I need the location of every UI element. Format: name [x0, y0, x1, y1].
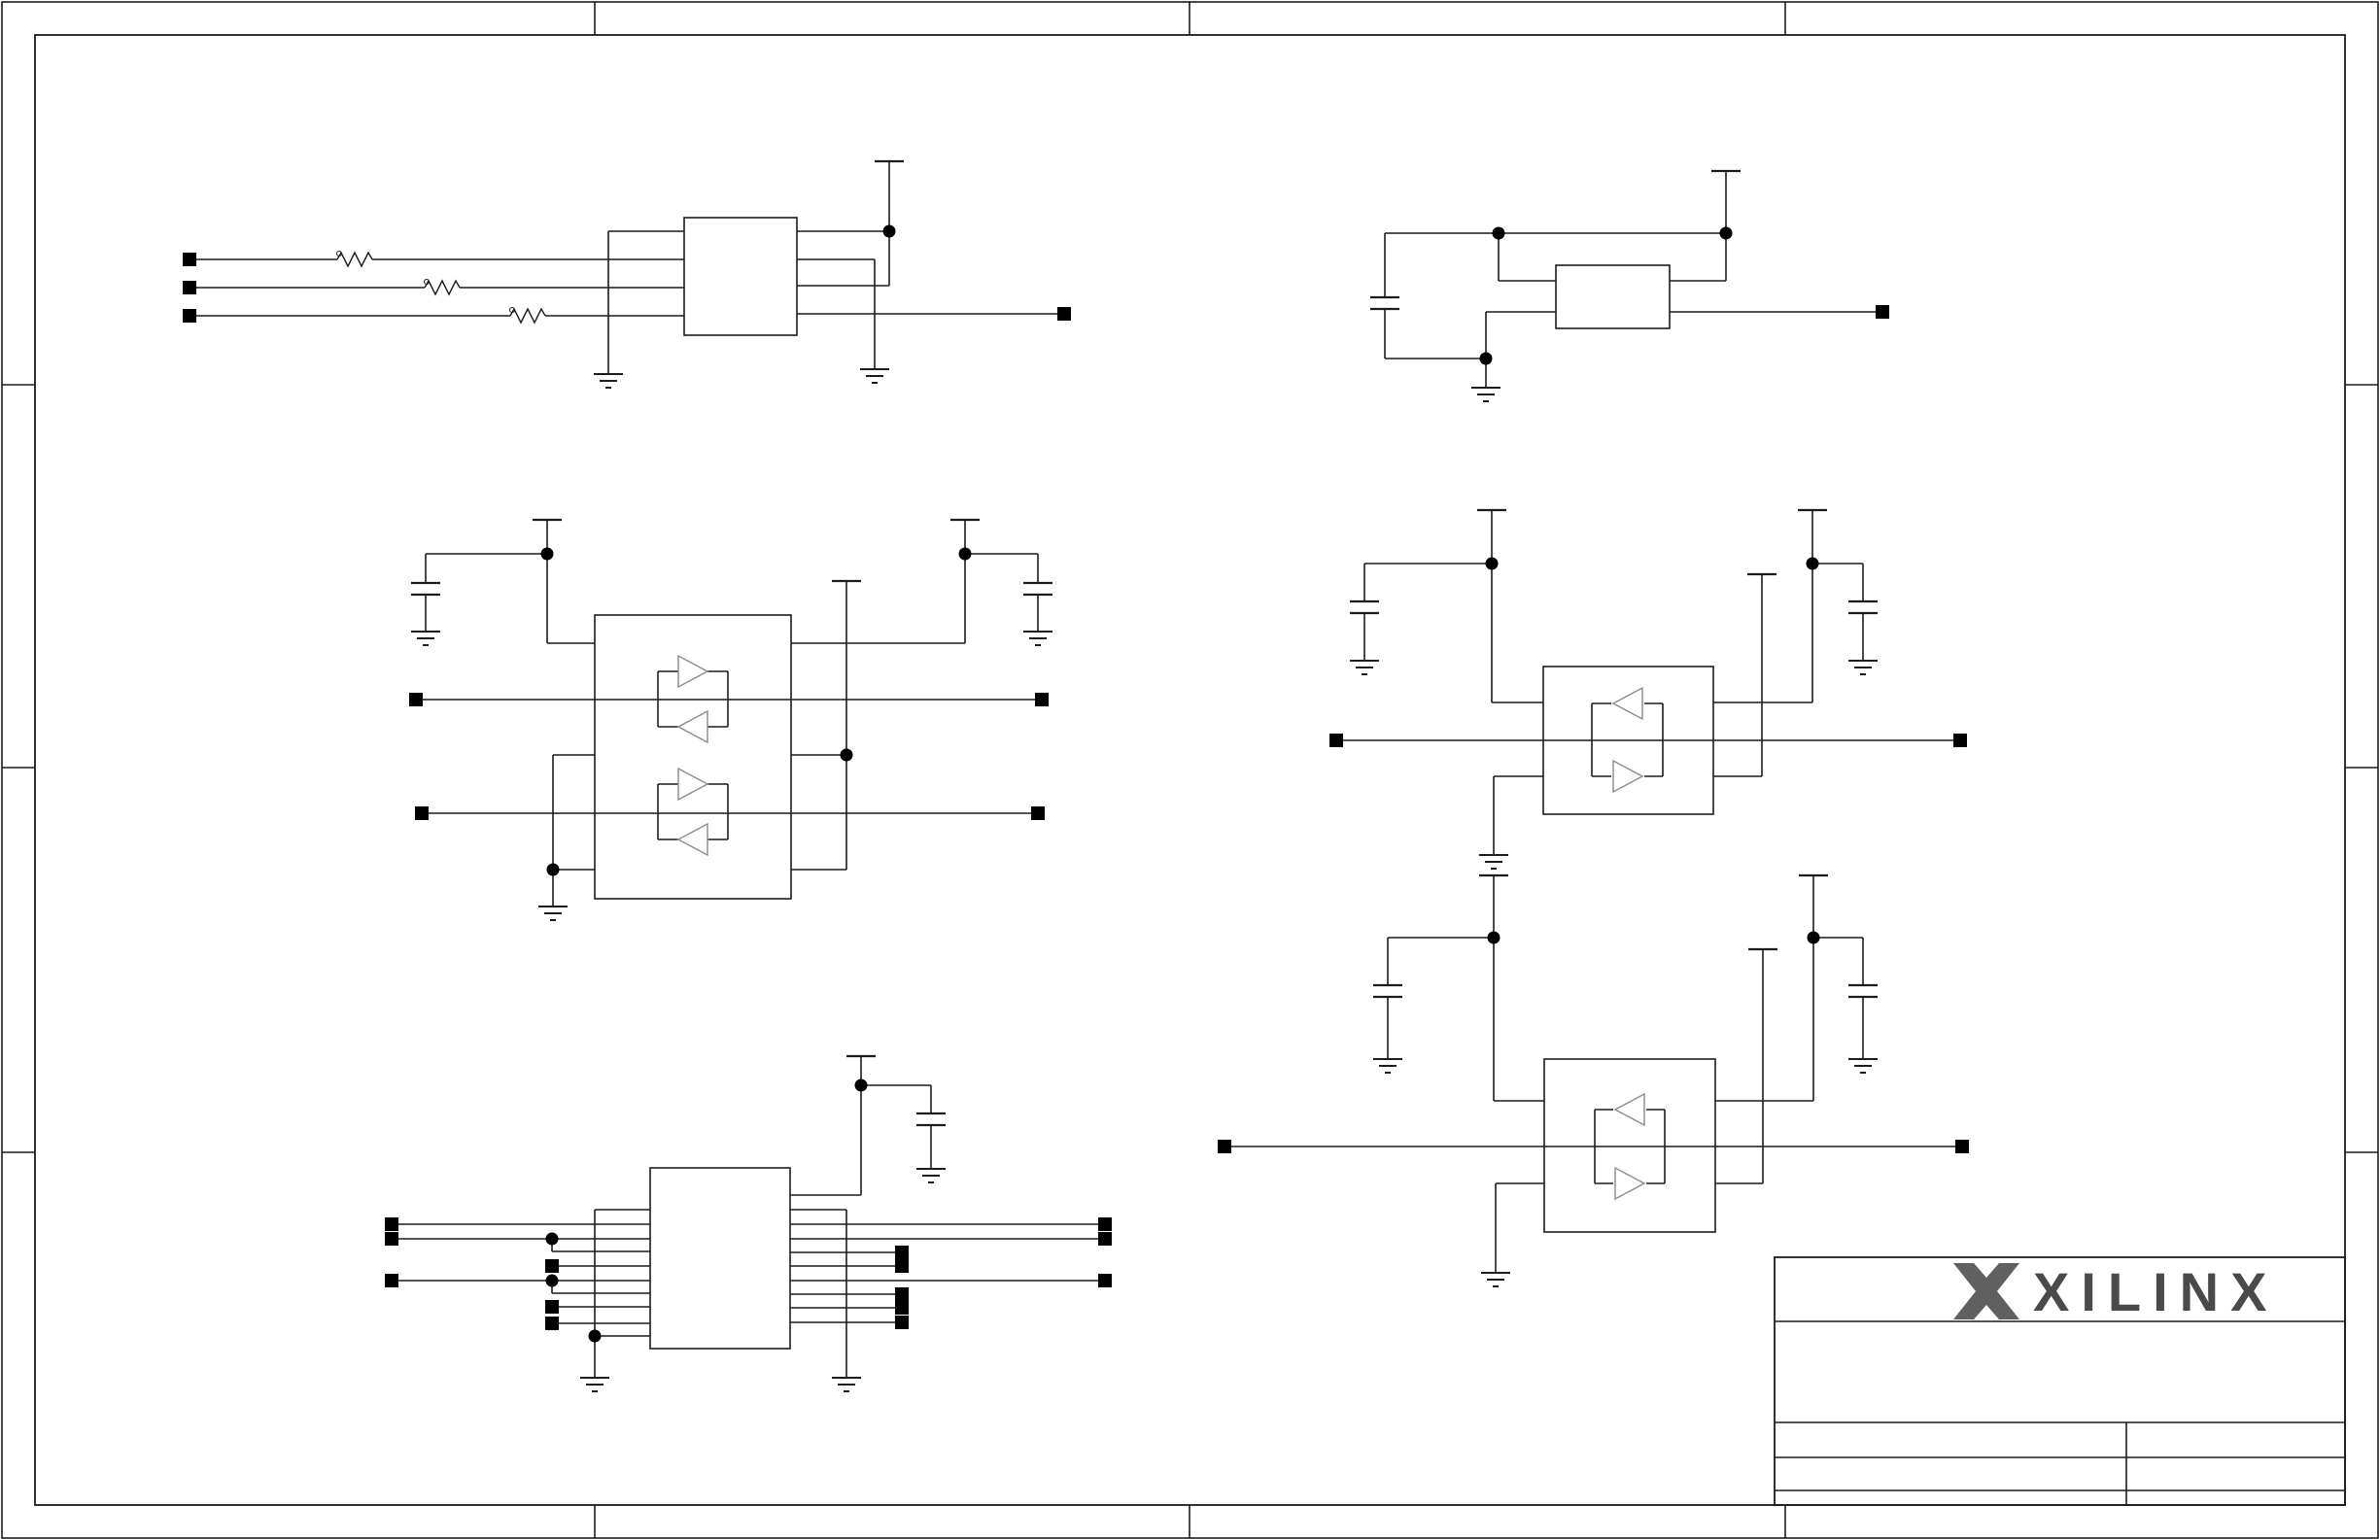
- junction-dot: [841, 749, 853, 762]
- buffer-triangle: [1613, 761, 1642, 792]
- junction-dot: [1720, 227, 1733, 240]
- junction-dot: [1480, 353, 1493, 365]
- connector-square: [545, 1259, 559, 1273]
- buffer-triangle: [1615, 1094, 1644, 1125]
- buffer-triangle: [678, 824, 707, 855]
- buffer-triangle: [678, 769, 707, 800]
- junction-dot: [1808, 932, 1820, 944]
- resistor: [337, 253, 372, 266]
- xilinx-logo-mark: [1953, 1263, 2019, 1319]
- xilinx-logo-text: XILINX: [2033, 1261, 2278, 1322]
- connector-square: [183, 281, 196, 294]
- connector-square: [895, 1287, 909, 1301]
- circuit-dual-buffer: [409, 520, 1052, 920]
- junction-dot: [541, 548, 554, 561]
- connector-square: [385, 1232, 398, 1246]
- junction-dot: [546, 1233, 559, 1246]
- connector-square: [1955, 1140, 1969, 1153]
- connector-square: [1098, 1274, 1112, 1287]
- connector-square: [1218, 1140, 1231, 1153]
- junction-dot: [1493, 227, 1505, 240]
- junction-dot: [547, 864, 560, 876]
- sheet-outer-border: [2, 2, 2378, 1538]
- connector-square: [545, 1317, 559, 1330]
- buffer-triangle: [1615, 1168, 1644, 1199]
- connector-square: [385, 1274, 398, 1287]
- schematic-canvas: XILINX: [0, 0, 2380, 1540]
- junction-dot: [589, 1330, 602, 1343]
- connector-square: [545, 1300, 559, 1314]
- border-frame: [2, 2, 2378, 1538]
- connector-square: [409, 693, 423, 706]
- buffer-triangle: [678, 711, 707, 742]
- junction-dot: [1807, 558, 1819, 570]
- junction-dot: [855, 1079, 868, 1092]
- schematic-sheet: XILINX: [0, 0, 2380, 1540]
- junction-dot: [883, 225, 896, 238]
- buffer-triangle: [1613, 688, 1642, 719]
- resistor: [425, 281, 460, 294]
- connector-square: [183, 253, 196, 266]
- connector-square: [385, 1217, 398, 1231]
- connector-square: [1098, 1217, 1112, 1231]
- ic-body: [650, 1168, 790, 1349]
- junction-dot: [1486, 558, 1499, 570]
- connector-square: [1031, 806, 1045, 820]
- circuit-filter-block: [1370, 171, 1889, 401]
- buffer-triangle: [678, 656, 707, 687]
- connector-square: [895, 1259, 909, 1273]
- ic-body: [1544, 1059, 1715, 1232]
- connector-square: [1329, 734, 1343, 747]
- resistor: [510, 309, 545, 323]
- connector-square: [415, 806, 429, 820]
- connector-square: [895, 1301, 909, 1315]
- circuit-single-buffer-lower: [1218, 875, 1969, 1286]
- connector-square: [1057, 307, 1071, 321]
- circuit-termination-network: [183, 161, 1071, 388]
- connector-square: [1953, 734, 1967, 747]
- ic-body: [684, 218, 797, 335]
- connector-square: [895, 1316, 909, 1329]
- junction-dot: [1488, 932, 1500, 944]
- connector-square: [1876, 305, 1889, 319]
- connector-square: [895, 1246, 909, 1259]
- junction-dot: [959, 548, 972, 561]
- circuit-layer: [183, 161, 1969, 1391]
- ic-body: [1556, 265, 1670, 328]
- junction-dot: [546, 1275, 559, 1287]
- connector-square: [1098, 1232, 1112, 1246]
- connector-square: [183, 309, 196, 323]
- circuit-transceiver: [385, 1056, 1112, 1391]
- connector-square: [1035, 693, 1049, 706]
- circuit-single-buffer-upper: [1329, 510, 1967, 869]
- ic-body: [595, 615, 791, 899]
